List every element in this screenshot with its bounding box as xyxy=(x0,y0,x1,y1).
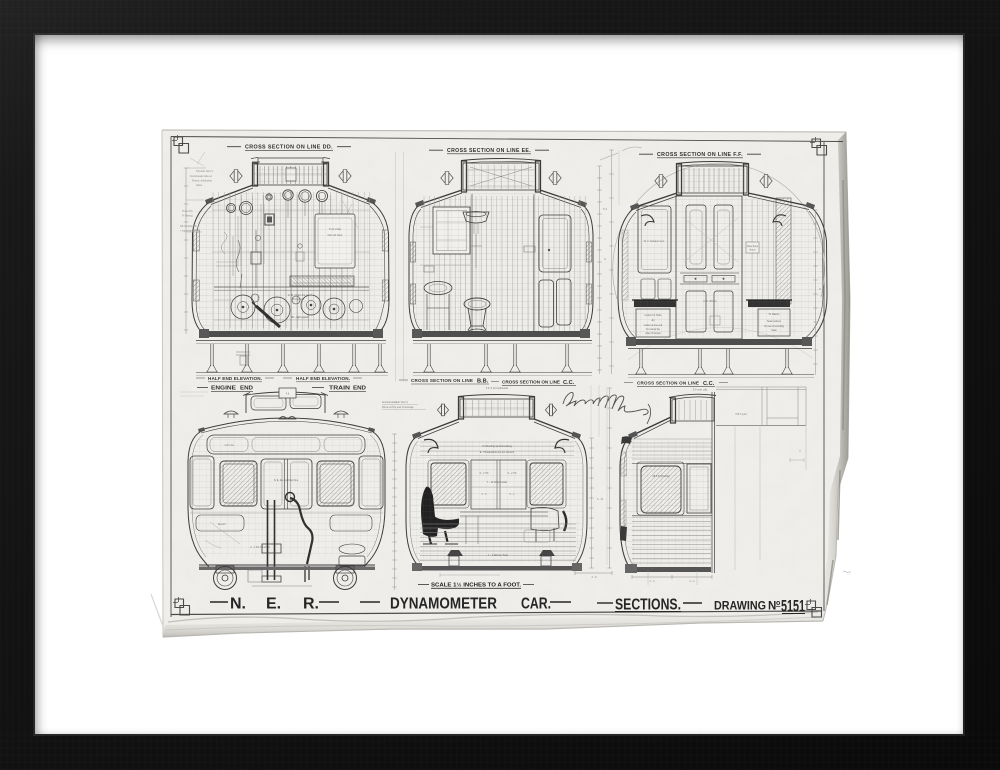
svg-text:o: o xyxy=(776,600,780,607)
svg-text:CROSS SECTION ON LINE F.F.: CROSS SECTION ON LINE F.F. xyxy=(657,152,743,158)
svg-text:R.: R. xyxy=(303,596,319,613)
svg-text:768 5 yard: 768 5 yard xyxy=(735,413,747,416)
svg-text:Dome at Top end of Averag: Dome at Top end of Average xyxy=(382,406,414,409)
svg-text:+ supporting: + supporting xyxy=(180,230,194,233)
svg-text:4 ft: 4 ft xyxy=(286,393,290,396)
svg-text:3/8 Crossheads: 3/8 Crossheads xyxy=(180,225,198,228)
svg-text:N.: N. xyxy=(230,596,246,613)
svg-text:5151: 5151 xyxy=(781,597,805,616)
svg-text:SCALE 1½ INCHES TO A FOOT.: SCALE 1½ INCHES TO A FOOT. xyxy=(431,582,521,589)
svg-text:P. Waring: P. Waring xyxy=(182,215,193,218)
svg-text:Three Ply: Three Ply xyxy=(182,210,193,213)
svg-text:5-0 over cills: 5-0 over cills xyxy=(693,388,708,392)
svg-text:Accommodation Vent 4: Accommodation Vent 4 xyxy=(382,401,408,404)
svg-text:DRAWING: DRAWING xyxy=(714,601,766,613)
svg-text:DYNAMOMETER: DYNAMOMETER xyxy=(390,596,497,613)
svg-text:HALF END ELEVATION.: HALF END ELEVATION. xyxy=(208,376,262,381)
svg-text:TRAIN: TRAIN xyxy=(329,386,350,392)
svg-text:6 - 10: 6 - 10 xyxy=(597,498,604,501)
svg-text:CROSS SECTION ON LINE: CROSS SECTION ON LINE xyxy=(502,380,560,385)
svg-text:···: ··· xyxy=(848,572,851,576)
svg-text:CROSS SECTION ON LINE: CROSS SECTION ON LINE xyxy=(637,381,699,386)
svg-text:ENGINE: ENGINE xyxy=(211,386,236,392)
svg-text:Torpedo Vent 4: Torpedo Vent 4 xyxy=(196,170,213,173)
svg-text:CAR.: CAR. xyxy=(521,596,551,613)
svg-text:4 - 8: 4 - 8 xyxy=(591,576,597,579)
svg-text:SECTIONS.: SECTIONS. xyxy=(615,597,681,614)
svg-text:4 - 3: 4 - 3 xyxy=(689,580,695,583)
svg-text:END: END xyxy=(240,386,253,392)
svg-text:Crossheads tube at: Crossheads tube at xyxy=(190,175,212,178)
svg-text:CROSS SECTION ON LINE EE.: CROSS SECTION ON LINE EE. xyxy=(447,148,531,154)
svg-text:CROSS SECTION ON LINE DD.: CROSS SECTION ON LINE DD. xyxy=(245,145,333,151)
svg-text:4 - 3: 4 - 3 xyxy=(649,580,655,583)
svg-text:tubes: tubes xyxy=(196,184,203,187)
svg-text:6'-2: 6'-2 xyxy=(603,208,608,211)
svg-text:B.B.: B.B. xyxy=(477,379,489,385)
svg-text:5 ft. 6 at Footboards: 5 ft. 6 at Footboards xyxy=(486,387,509,390)
svg-text:E.: E. xyxy=(266,596,281,613)
svg-text:Frame, Antifriction: Frame, Antifriction xyxy=(192,180,213,183)
svg-text:END: END xyxy=(353,386,366,392)
svg-text:CROSS SECTION ON LINE: CROSS SECTION ON LINE xyxy=(411,378,473,383)
svg-text:HALF END ELEVATION.: HALF END ELEVATION. xyxy=(296,376,350,381)
